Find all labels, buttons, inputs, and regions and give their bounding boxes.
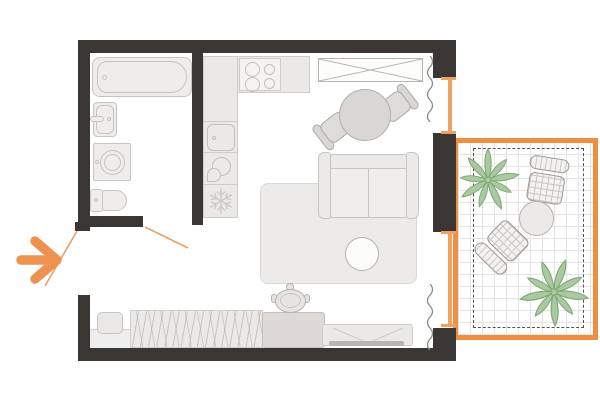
entrance-arrow-icon [14, 234, 66, 286]
window-frame [448, 233, 452, 326]
kitchen-sink-unit [203, 121, 238, 153]
fridge-freezer [203, 184, 238, 218]
pillow [97, 312, 123, 334]
balcony-door-frame-cap [441, 77, 456, 80]
floor-plan [0, 0, 600, 400]
wall-right-bottom [433, 328, 456, 361]
wicker-chair-seat [526, 171, 566, 205]
window-frame-cap [441, 324, 456, 327]
window-frame-cap [441, 231, 456, 234]
kitchen-counter-corner [203, 56, 238, 122]
sofa-cushion [330, 168, 369, 218]
toilet-bowl [101, 190, 127, 211]
burner-icon [245, 62, 260, 77]
wall-left-upper [78, 40, 90, 230]
burner-icon [264, 64, 275, 75]
dining-table [339, 89, 391, 141]
bathtub-inner [97, 61, 187, 93]
curtain-icon [425, 56, 435, 122]
pot-lid [280, 293, 301, 308]
wall-partition-bathroom [192, 53, 203, 225]
wall-right-top [433, 40, 456, 78]
burner-icon [245, 77, 260, 92]
bathroom-door-swing [145, 227, 188, 248]
sofa-armrest [406, 152, 419, 219]
wardrobe-cross-icon [319, 59, 422, 81]
washer-knob [95, 160, 99, 164]
wall-bathroom-south [85, 216, 143, 227]
plant-icon [455, 147, 521, 213]
cabinet [262, 312, 325, 348]
bench-rail [329, 341, 404, 346]
wall-bottom [78, 348, 456, 361]
blanket [130, 310, 263, 348]
toilet-flush-button [94, 198, 98, 202]
sofa-cushion [368, 168, 407, 218]
sink-drain [107, 117, 111, 121]
plant-icon [518, 256, 590, 328]
sofa-back [330, 154, 407, 169]
stove [239, 58, 281, 91]
kitchen-sink-drain [212, 136, 216, 140]
balcony-door-frame [448, 79, 452, 132]
bathtub-drain [102, 75, 107, 80]
wall-top [78, 40, 456, 53]
kettle-spout [207, 168, 221, 182]
faucet-icon [90, 116, 104, 122]
balcony-door-frame-cap [441, 131, 456, 134]
balcony-table [519, 201, 554, 236]
burner-icon [264, 78, 275, 89]
curtain-icon [425, 284, 435, 350]
wall-right-middle [433, 133, 456, 232]
kettle-unit [203, 152, 238, 185]
coffee-table [345, 237, 379, 271]
snowflake-icon [208, 188, 234, 214]
wardrobe [318, 58, 423, 82]
wicker-chair-icon [524, 154, 571, 206]
washer-drum-inner [104, 154, 121, 171]
